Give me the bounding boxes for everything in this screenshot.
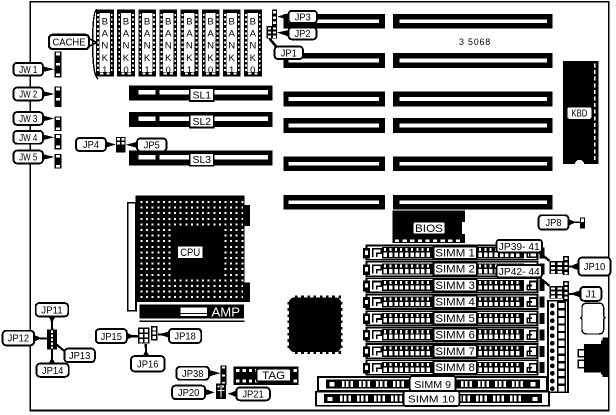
svg-text:JP10: JP10 <box>584 262 606 273</box>
svg-text:JP5: JP5 <box>144 141 160 152</box>
svg-text:JP11: JP11 <box>41 306 63 317</box>
svg-text:K: K <box>144 53 151 64</box>
svg-text:B: B <box>144 17 150 28</box>
svg-text:JP42- 44: JP42- 44 <box>499 267 540 278</box>
svg-text:SL1: SL1 <box>193 90 212 101</box>
svg-text:N: N <box>186 41 193 52</box>
svg-text:B: B <box>250 17 256 28</box>
svg-text:JP18: JP18 <box>174 332 196 343</box>
svg-text:SL3: SL3 <box>193 155 212 166</box>
svg-text:A: A <box>228 29 235 40</box>
svg-text:1: 1 <box>187 65 192 76</box>
svg-text:3 5068: 3 5068 <box>459 37 491 47</box>
svg-text:1: 1 <box>229 65 234 76</box>
svg-text:B: B <box>165 17 171 28</box>
svg-text:SIMM 7: SIMM 7 <box>435 346 475 358</box>
svg-text:SIMM 5: SIMM 5 <box>435 313 475 325</box>
svg-text:B: B <box>207 17 213 28</box>
svg-text:JW 5: JW 5 <box>19 153 37 164</box>
svg-text:JP15: JP15 <box>101 332 123 343</box>
svg-text:TAG: TAG <box>262 370 285 382</box>
svg-text:CPU: CPU <box>180 247 200 259</box>
svg-text:0: 0 <box>123 65 128 76</box>
svg-text:B: B <box>102 17 108 28</box>
svg-text:JP21: JP21 <box>242 390 264 401</box>
svg-text:A: A <box>250 29 257 40</box>
svg-text:B: B <box>186 17 192 28</box>
svg-text:A: A <box>207 29 214 40</box>
svg-text:SIMM 10: SIMM 10 <box>408 395 455 406</box>
svg-text:SIMM 4: SIMM 4 <box>435 297 475 309</box>
svg-text:JW 4: JW 4 <box>19 133 37 144</box>
svg-text:N: N <box>165 41 172 52</box>
svg-text:JW 1: JW 1 <box>19 65 37 76</box>
svg-text:JP13: JP13 <box>69 351 91 362</box>
svg-text:CACHE: CACHE <box>53 38 86 49</box>
svg-text:B: B <box>123 17 129 28</box>
svg-text:SIMM 3: SIMM 3 <box>435 280 475 292</box>
svg-text:SIMM 1: SIMM 1 <box>435 247 475 259</box>
svg-text:JP8: JP8 <box>546 218 562 229</box>
svg-text:BIOS: BIOS <box>415 223 443 235</box>
svg-text:K: K <box>123 53 130 64</box>
svg-text:A: A <box>123 29 130 40</box>
svg-text:N: N <box>228 41 235 52</box>
svg-text:JP12: JP12 <box>8 334 30 345</box>
svg-text:KBD: KBD <box>571 109 587 120</box>
svg-text:N: N <box>101 41 108 52</box>
svg-text:A: A <box>186 29 193 40</box>
svg-text:K: K <box>207 53 214 64</box>
svg-text:N: N <box>123 41 130 52</box>
svg-text:1: 1 <box>144 65 149 76</box>
svg-text:JW 2: JW 2 <box>19 90 37 101</box>
svg-text:SIMM 6: SIMM 6 <box>435 329 475 341</box>
svg-text:SIMM 2: SIMM 2 <box>435 264 475 276</box>
svg-text:JP2: JP2 <box>295 29 311 40</box>
svg-text:N: N <box>249 41 256 52</box>
svg-text:J1: J1 <box>586 290 597 301</box>
svg-text:1: 1 <box>102 65 107 76</box>
svg-text:K: K <box>102 53 109 64</box>
svg-text:N: N <box>207 41 214 52</box>
svg-text:AMP: AMP <box>212 306 241 320</box>
svg-text:JP38: JP38 <box>182 369 204 380</box>
svg-text:K: K <box>228 53 235 64</box>
svg-text:JP39- 41: JP39- 41 <box>499 242 540 253</box>
svg-text:JP1: JP1 <box>281 49 297 60</box>
svg-text:JP3: JP3 <box>295 13 311 24</box>
svg-text:B: B <box>228 17 234 28</box>
svg-text:SIMM 8: SIMM 8 <box>435 362 475 374</box>
svg-text:SL2: SL2 <box>193 117 212 128</box>
svg-text:K: K <box>250 53 257 64</box>
svg-text:JP16: JP16 <box>137 360 159 371</box>
svg-text:JP4: JP4 <box>83 140 99 151</box>
svg-text:N: N <box>144 41 151 52</box>
svg-text:K: K <box>186 53 193 64</box>
svg-text:0: 0 <box>208 65 213 76</box>
svg-text:0: 0 <box>250 65 255 76</box>
svg-text:0: 0 <box>166 65 171 76</box>
svg-text:A: A <box>165 29 172 40</box>
svg-text:A: A <box>144 29 151 40</box>
svg-text:JP20: JP20 <box>178 388 200 399</box>
svg-text:K: K <box>165 53 172 64</box>
svg-text:SIMM 9: SIMM 9 <box>414 380 451 391</box>
svg-text:JP14: JP14 <box>42 366 64 377</box>
svg-text:A: A <box>102 29 109 40</box>
svg-text:JW 3: JW 3 <box>19 114 37 125</box>
